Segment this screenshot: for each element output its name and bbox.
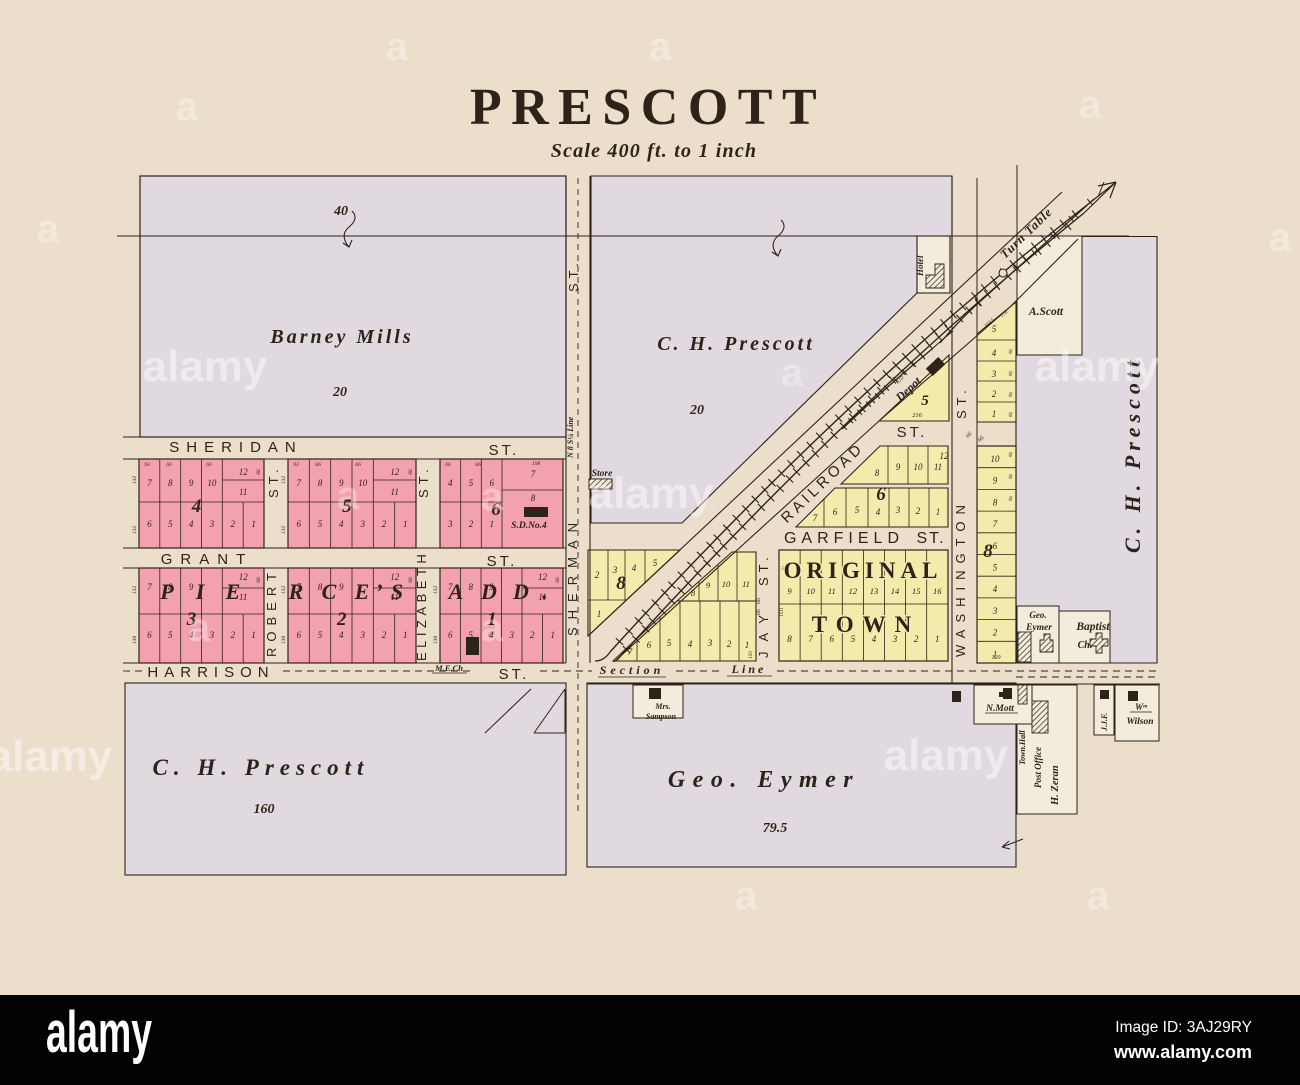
svg-text:2: 2 [993,628,998,638]
svg-text:1: 1 [992,409,997,419]
svg-text:132: 132 [132,526,138,535]
svg-text:S.D.No.4: S.D.No.4 [511,521,547,531]
svg-text:10: 10 [207,478,217,488]
svg-text:4: 4 [632,563,637,573]
svg-text:2: 2 [382,630,387,640]
svg-text:132: 132 [281,526,287,535]
svg-text:5: 5 [653,558,658,568]
svg-text:132: 132 [281,586,287,595]
svg-text:5: 5 [318,519,323,529]
svg-text:12: 12 [390,467,400,477]
svg-text:2: 2 [382,519,387,529]
svg-text:8: 8 [318,478,323,488]
svg-text:N.Mott: N.Mott [985,704,1014,714]
svg-text:66: 66 [256,469,262,475]
svg-text:alamy: alamy [46,1000,152,1065]
svg-text:2: 2 [231,630,236,640]
svg-text:.: . [542,579,548,604]
svg-text:5: 5 [168,630,173,640]
svg-text:Sampson: Sampson [646,712,677,721]
svg-text:132: 132 [281,476,287,485]
svg-text:4: 4 [339,519,344,529]
svg-text:a: a [481,475,504,519]
svg-text:8: 8 [168,478,173,488]
svg-text:TOWN: TOWN [812,612,920,637]
svg-text:9: 9 [993,476,998,486]
svg-text:132: 132 [132,476,138,485]
svg-text:3: 3 [991,369,997,379]
svg-text:alamy: alamy [884,731,1009,780]
svg-text:a: a [781,351,804,395]
svg-text:4: 4 [191,496,202,517]
svg-text:6: 6 [296,519,301,529]
svg-text:10: 10 [722,579,731,589]
svg-text:6: 6 [876,484,886,505]
svg-text:11: 11 [934,462,942,472]
svg-text:D: D [512,579,529,604]
svg-text:a: a [1087,874,1110,918]
svg-text:5: 5 [667,638,672,648]
svg-text:138: 138 [132,636,138,645]
svg-text:a: a [176,85,199,129]
svg-text:4: 4 [688,639,693,649]
svg-text:10: 10 [991,454,1001,464]
svg-text:15: 15 [912,586,921,596]
svg-text:7: 7 [296,478,301,488]
svg-text:7: 7 [531,469,536,479]
svg-text:’: ’ [375,579,382,604]
svg-text:10: 10 [806,586,815,596]
svg-text:6: 6 [296,630,301,640]
svg-text:ST.: ST. [499,666,530,683]
svg-text:1: 1 [489,519,494,529]
svg-text:66: 66 [555,577,561,583]
svg-text:a: a [735,874,758,918]
svg-text:9: 9 [189,582,194,592]
svg-text:66: 66 [475,462,481,468]
svg-text:120: 120 [992,655,1001,661]
svg-text:alamy: alamy [0,732,113,781]
svg-text:66: 66 [315,462,321,468]
svg-text:66: 66 [166,462,172,468]
svg-text:www.alamy.com: www.alamy.com [1113,1042,1252,1062]
svg-text:1: 1 [745,640,750,650]
svg-text:216: 216 [912,412,923,419]
svg-text:4: 4 [993,584,998,594]
svg-text:10: 10 [914,462,924,472]
svg-text:1: 1 [551,630,556,640]
svg-text:4: 4 [448,478,453,488]
svg-text:2: 2 [595,570,600,580]
svg-text:66: 66 [408,469,414,475]
svg-text:ORIGINAL: ORIGINAL [784,558,943,583]
svg-text:3: 3 [209,519,215,529]
svg-text:160: 160 [254,802,275,817]
svg-text:8: 8 [993,497,998,507]
svg-text:66: 66 [355,462,361,468]
svg-text:2: 2 [231,519,236,529]
svg-text:A.Scott: A.Scott [1028,306,1064,318]
svg-text:7: 7 [147,478,152,488]
svg-text:a: a [481,606,504,650]
svg-text:1: 1 [403,630,408,640]
svg-text:66: 66 [756,598,762,604]
svg-text:5: 5 [168,519,173,529]
svg-text:8: 8 [983,541,993,562]
svg-text:E: E [225,579,241,604]
svg-text:D: D [480,579,497,604]
svg-text:159: 159 [749,651,754,659]
svg-text:12: 12 [239,467,249,477]
svg-text:6: 6 [993,541,998,551]
svg-text:10: 10 [358,478,368,488]
svg-text:alamy: alamy [143,342,268,391]
svg-text:9: 9 [896,462,901,472]
svg-text:8: 8 [469,582,474,592]
svg-text:1: 1 [597,609,602,619]
svg-text:6: 6 [147,630,152,640]
svg-text:Section: Section [600,663,665,677]
svg-text:a: a [337,474,360,518]
svg-text:16: 16 [933,586,942,596]
svg-text:Town.Hall: Town.Hall [1018,730,1027,765]
svg-text:5: 5 [993,563,998,573]
svg-text:3: 3 [707,638,713,648]
svg-text:66: 66 [445,462,451,468]
svg-text:4: 4 [189,519,194,529]
svg-text:J.J.F.: J.J.F. [1100,713,1109,732]
svg-text:8: 8 [616,573,626,594]
svg-text:1511: 1511 [780,607,785,616]
svg-text:Post Office: Post Office [1033,747,1043,788]
svg-text:6: 6 [833,507,838,517]
svg-text:R: R [288,579,304,604]
svg-text:198: 198 [532,461,541,467]
svg-text:E: E [354,579,370,604]
svg-text:SHERIDAN: SHERIDAN [169,439,303,456]
svg-text:a: a [1079,83,1102,127]
svg-text:ELIZABETH: ELIZABETH [414,550,429,661]
svg-text:ST.: ST. [489,442,520,459]
svg-text:SHERMAN: SHERMAN [565,515,580,636]
svg-text:5: 5 [469,478,474,488]
svg-text:S: S [391,579,403,604]
svg-text:Image ID: 3AJ29RY: Image ID: 3AJ29RY [1115,1019,1252,1036]
svg-text:ST.: ST. [416,464,431,498]
svg-text:7: 7 [813,513,818,523]
svg-text:2: 2 [992,389,997,399]
svg-text:11: 11 [742,579,750,589]
svg-text:12: 12 [849,586,858,596]
svg-text:2: 2 [469,519,474,529]
svg-text:20: 20 [332,385,347,400]
svg-text:8: 8 [787,634,792,644]
svg-text:a: a [1269,216,1292,260]
svg-text:3: 3 [359,630,365,640]
svg-text:6: 6 [147,519,152,529]
svg-text:7: 7 [993,519,998,529]
svg-text:13: 13 [870,586,879,596]
svg-text:Wᵐ: Wᵐ [1135,702,1148,712]
svg-text:N 8 S¼ Line: N 8 S¼ Line [566,416,575,459]
svg-text:5: 5 [921,393,929,409]
svg-text:3: 3 [509,630,515,640]
svg-text:A: A [447,579,464,604]
svg-text:2: 2 [916,506,921,516]
svg-text:M.E.Ch: M.E.Ch [434,663,463,673]
svg-text:ST.: ST. [756,552,771,586]
svg-text:8: 8 [531,493,536,503]
svg-text:Geo.: Geo. [1029,610,1046,620]
svg-text:4: 4 [339,630,344,640]
svg-text:132: 132 [132,586,138,595]
svg-text:3: 3 [895,505,901,515]
svg-text:1: 1 [936,507,941,517]
svg-text:66: 66 [256,577,262,583]
svg-text:Scale 400 ft. to 1 inch: Scale 400 ft. to 1 inch [551,140,758,162]
svg-text:Baptist: Baptist [1075,621,1110,633]
svg-text:138: 138 [281,636,287,645]
svg-text:3: 3 [447,519,453,529]
svg-text:5: 5 [855,505,860,515]
svg-text:5: 5 [992,324,997,334]
svg-text:ROBERT: ROBERT [264,567,279,657]
svg-text:20: 20 [689,403,704,418]
svg-text:Line: Line [731,662,767,676]
svg-text:1: 1 [251,519,256,529]
svg-text:PRESCOTT: PRESCOTT [470,79,826,136]
svg-text:11: 11 [828,586,836,596]
svg-text:7: 7 [147,582,152,592]
svg-text:4: 4 [876,507,881,517]
svg-text:40: 40 [333,204,348,219]
svg-text:4: 4 [992,348,997,358]
svg-text:Wilson: Wilson [1126,717,1153,727]
svg-text:HARRISON: HARRISON [147,664,274,681]
svg-text:132: 132 [433,586,439,595]
svg-text:ST.: ST. [916,530,945,547]
svg-text:GRANT: GRANT [161,551,254,568]
svg-text:Mrs.: Mrs. [654,702,670,711]
svg-text:ST.: ST. [954,385,969,419]
svg-text:H. Zeran: H. Zeran [1050,765,1061,806]
svg-text:ST.: ST. [266,464,281,498]
svg-text:2: 2 [727,639,732,649]
svg-text:9: 9 [189,478,194,488]
svg-text:8: 8 [875,468,880,478]
svg-text:3: 3 [992,606,998,616]
svg-text:9: 9 [339,582,344,592]
svg-text:I: I [195,579,206,604]
svg-text:2: 2 [530,630,535,640]
svg-text:93: 93 [293,462,299,468]
svg-text:P: P [159,579,174,604]
svg-text:Eymer: Eymer [1025,623,1052,633]
svg-text:alamy: alamy [1035,342,1160,391]
svg-text:6: 6 [647,640,652,650]
svg-text:a: a [37,207,60,251]
svg-text:66: 66 [206,462,212,468]
svg-text:GARFIELD: GARFIELD [784,530,904,547]
svg-text:ST.: ST. [566,258,581,292]
svg-text:6: 6 [448,630,453,640]
svg-text:79.5: 79.5 [763,821,788,836]
svg-text:a: a [188,606,211,650]
svg-text:Geo. Eymer: Geo. Eymer [668,767,860,793]
svg-text:a: a [386,25,409,69]
svg-text:WASHINGTON: WASHINGTON [953,498,968,657]
svg-text:ST.: ST. [487,553,518,570]
svg-text:ST.: ST. [897,424,928,441]
svg-text:Hotel: Hotel [915,255,925,277]
svg-text:12: 12 [940,451,950,461]
svg-text:C. H. Prescott: C. H. Prescott [153,755,370,780]
svg-text:3: 3 [359,519,365,529]
svg-text:5: 5 [318,630,323,640]
svg-text:14: 14 [891,586,900,596]
svg-text:alamy: alamy [589,469,714,518]
svg-text:a: a [649,25,672,69]
svg-text:1: 1 [403,519,408,529]
svg-text:2: 2 [336,609,347,630]
svg-text:C: C [322,579,337,604]
svg-text:138: 138 [433,636,439,645]
svg-text:11: 11 [239,487,247,497]
svg-text:1: 1 [251,630,256,640]
svg-text:93: 93 [144,462,150,468]
svg-text:11: 11 [391,487,399,497]
svg-text:1: 1 [935,634,940,644]
svg-text:Barney Mills: Barney Mills [269,326,413,348]
svg-text:66: 66 [756,609,762,615]
